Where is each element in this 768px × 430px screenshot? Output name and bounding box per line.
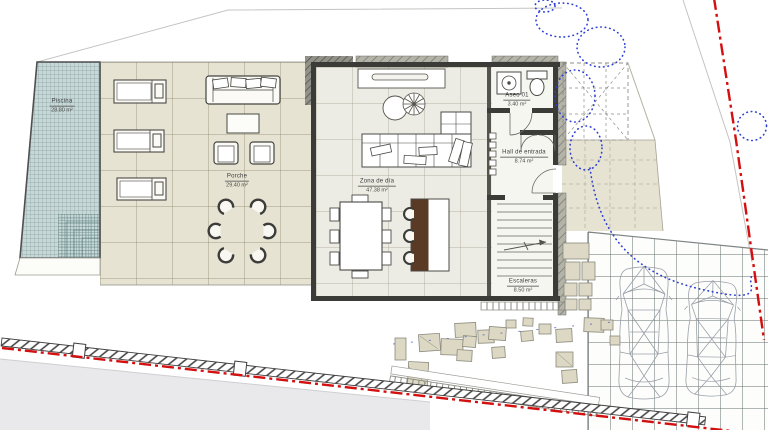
room-label-aseo: Aseo 01 3.40 m² [503,93,530,108]
room-label-hall: Hall de entrada 8.74 m² [500,150,548,165]
porch-coffee-table [227,114,259,133]
toilet-icon [527,71,547,79]
room-label-porche: Porche 29.40 m² [225,174,249,189]
room-area: 28.80 m² [50,107,75,113]
room-area: 29.40 m² [225,182,249,188]
porch-armchairs [214,142,274,164]
sun-loungers [114,80,166,200]
room-name: Porche [225,174,249,182]
living-sofa [362,112,472,167]
room-label-escaleras: Escaleras 8.50 m² [507,279,539,294]
room-area: 47.38 m² [358,187,396,193]
room-label-zona-de-dia: Zona de día 47.38 m² [358,179,396,194]
room-name: Aseo 01 [503,93,530,101]
planters [563,243,595,310]
terrace-pergola-dashed [563,63,655,140]
car-2 [683,280,741,397]
dining-table [340,202,382,270]
hall-niche [489,133,496,175]
sideboard [358,69,445,88]
room-name: Escaleras [507,279,539,287]
room-name: Hall de entrada [500,150,548,158]
boundary-wall-hatched [1,335,706,428]
stair-direction-arrow [504,240,546,251]
bar-stools [404,208,414,264]
staircase [497,204,552,276]
kitchen-island [404,199,449,271]
spiral-stair-icon [403,93,425,115]
driveway-boundary [588,232,768,430]
dining-table-set [330,195,391,278]
room-label-piscina: Piscina 28.80 m² [50,99,75,114]
room-area: 8.74 m² [500,158,548,164]
floor-plan-canvas: Piscina 28.80 m² Porche 29.40 m² Zona de… [0,0,768,430]
car-1 [616,266,672,399]
porch-dining-set [209,197,276,265]
terrace-grid [562,140,663,231]
room-area: 3.40 m² [503,101,530,107]
pool-deck [15,258,100,275]
room-name: Piscina [50,99,75,107]
room-name: Zona de día [358,179,396,187]
plan-linework [0,0,768,430]
exterior-grate [481,302,565,310]
porch-sofa [206,76,280,104]
room-area: 8.50 m² [507,287,539,293]
driveway-cars [616,266,741,399]
